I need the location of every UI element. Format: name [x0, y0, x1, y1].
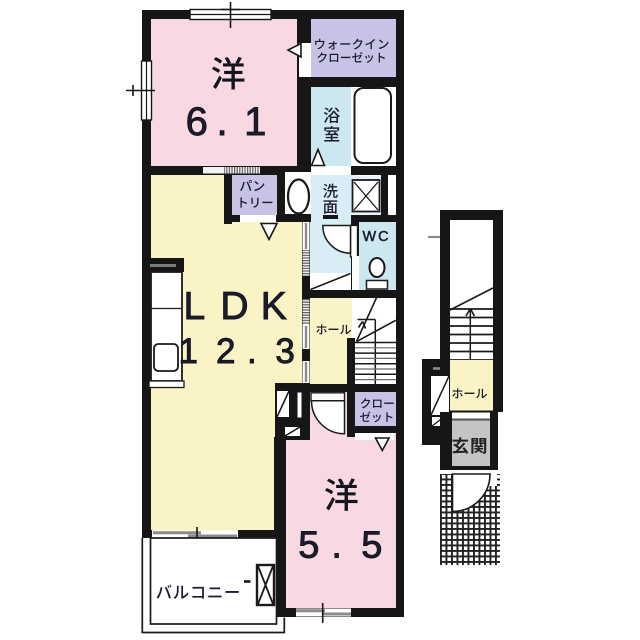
svg-text:6: 6	[186, 100, 208, 144]
svg-text:D: D	[220, 285, 248, 328]
svg-text:1: 1	[178, 332, 197, 371]
svg-text:L: L	[184, 285, 206, 328]
svg-text:.: .	[217, 100, 228, 144]
svg-text:3: 3	[275, 332, 294, 371]
svg-text:.: .	[247, 332, 257, 371]
svg-text:.: .	[331, 525, 342, 567]
svg-text:5: 5	[361, 525, 382, 567]
svg-text:WC: WC	[363, 229, 391, 245]
svg-text:1: 1	[244, 100, 266, 144]
svg-text:5: 5	[298, 525, 319, 567]
svg-text:2: 2	[216, 332, 235, 371]
svg-text:K: K	[261, 285, 287, 328]
